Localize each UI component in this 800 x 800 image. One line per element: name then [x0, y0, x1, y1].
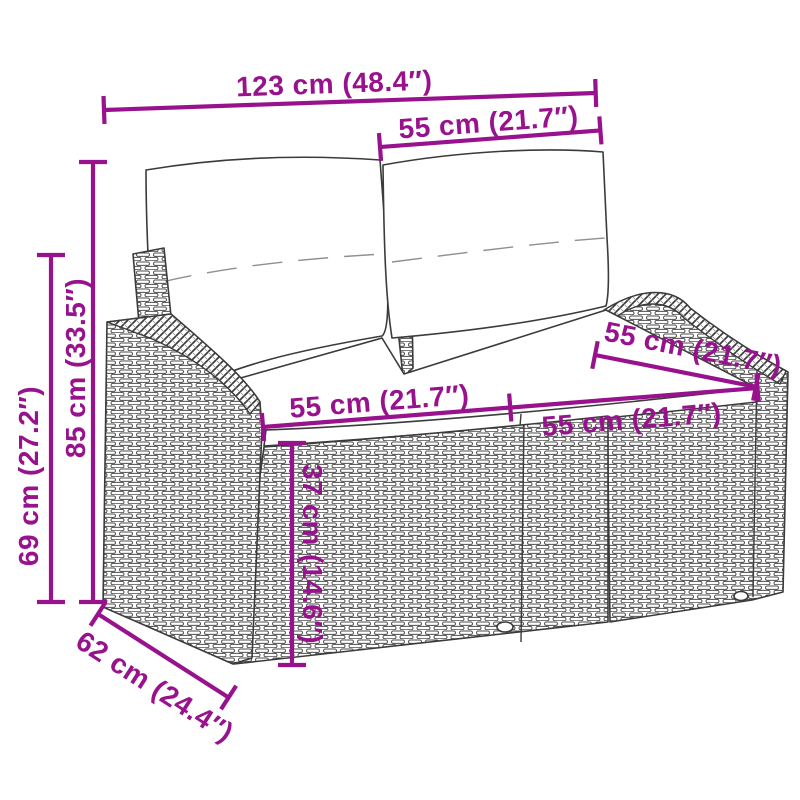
diagram-canvas: 123 cm (48.4″) 55 cm (21.7″) 85 cm (33.5… [0, 0, 800, 800]
product-dimension-diagram: 123 cm (48.4″) 55 cm (21.7″) 85 cm (33.5… [0, 0, 800, 800]
back-cushion-right [383, 150, 608, 338]
dimension-armrest-height: 69 cm (27.2″) [13, 255, 65, 602]
dimension-label-seat-height: 37 cm (14.6″) [297, 464, 328, 644]
sofa-foot-center [497, 622, 513, 632]
dimension-label-armrest-height: 69 cm (27.2″) [13, 386, 44, 566]
sofa-foot-right [734, 592, 748, 601]
dimension-total-height: 85 cm (33.5″) [60, 162, 107, 602]
dimension-label-overall-width: 123 cm (48.4″) [236, 65, 433, 103]
dimension-label-total-height: 85 cm (33.5″) [60, 278, 91, 458]
left-corner-post [133, 248, 171, 323]
